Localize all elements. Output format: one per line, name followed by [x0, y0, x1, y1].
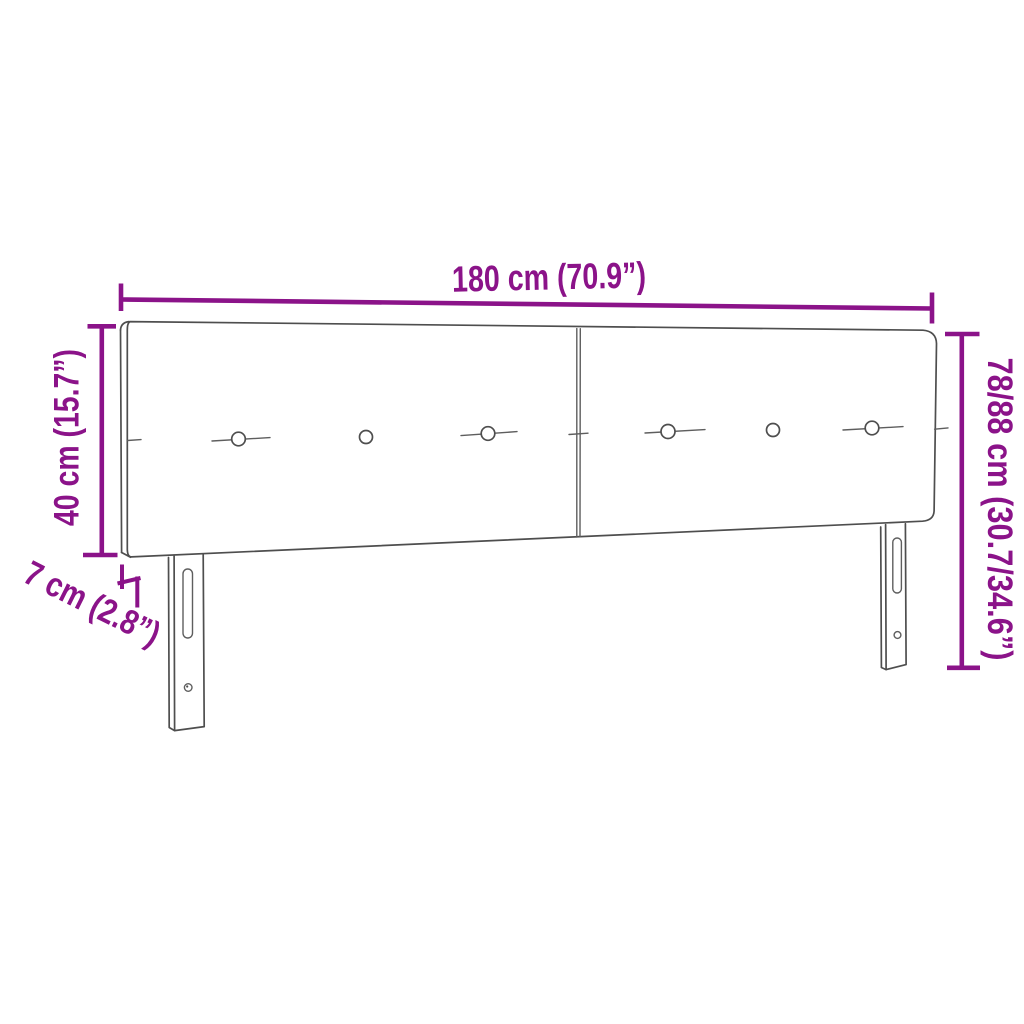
tufting-button [661, 425, 675, 439]
seam-crease-tick [569, 433, 588, 434]
tufting-button [360, 431, 373, 444]
right-leg-front-face [886, 524, 907, 670]
product-dimension-diagram: 180 cm (70.9”) 40 cm (15.7”) 78/88 cm (3… [0, 0, 1024, 1024]
total-height-dimension: 78/88 cm (30.7/34.6”) [945, 334, 1020, 668]
headboard-side-face [121, 322, 131, 558]
tufting-button [865, 421, 879, 435]
left-leg-screw-dot [186, 685, 188, 687]
left-leg-front-face [174, 555, 204, 731]
tufting-button [481, 427, 495, 441]
tufting-buttons [212, 421, 903, 446]
tufting-button [232, 432, 246, 446]
depth-dimension-label: 7 cm (2.8”) [18, 554, 167, 654]
panel-height-dimension: 40 cm (15.7”) [47, 326, 118, 555]
right-leg [881, 524, 906, 670]
left-edge-crease-tick [128, 440, 142, 441]
left-leg-screw-hole [184, 684, 192, 692]
tufting-button [767, 424, 780, 437]
width-dimension-label: 180 cm (70.9”) [452, 254, 647, 299]
panel-height-dimension-label: 40 cm (15.7”) [47, 349, 87, 526]
side-outer-edge [121, 330, 122, 553]
right-leg-slot [893, 538, 902, 593]
width-dimension-line [121, 300, 932, 309]
depth-dimension: 7 cm (2.8”) [18, 554, 167, 654]
headboard-panel-seam [569, 329, 588, 537]
diagram-canvas: 180 cm (70.9”) 40 cm (15.7”) 78/88 cm (3… [0, 0, 1024, 1024]
right-leg-screw-hole [894, 632, 901, 639]
left-leg-slot [183, 569, 193, 638]
left-leg [169, 555, 205, 731]
headboard-drawing [121, 322, 949, 731]
width-dimension: 180 cm (70.9”) [121, 254, 932, 323]
total-height-dimension-label: 78/88 cm (30.7/34.6”) [980, 358, 1020, 661]
right-edge-crease-tick [935, 428, 948, 429]
